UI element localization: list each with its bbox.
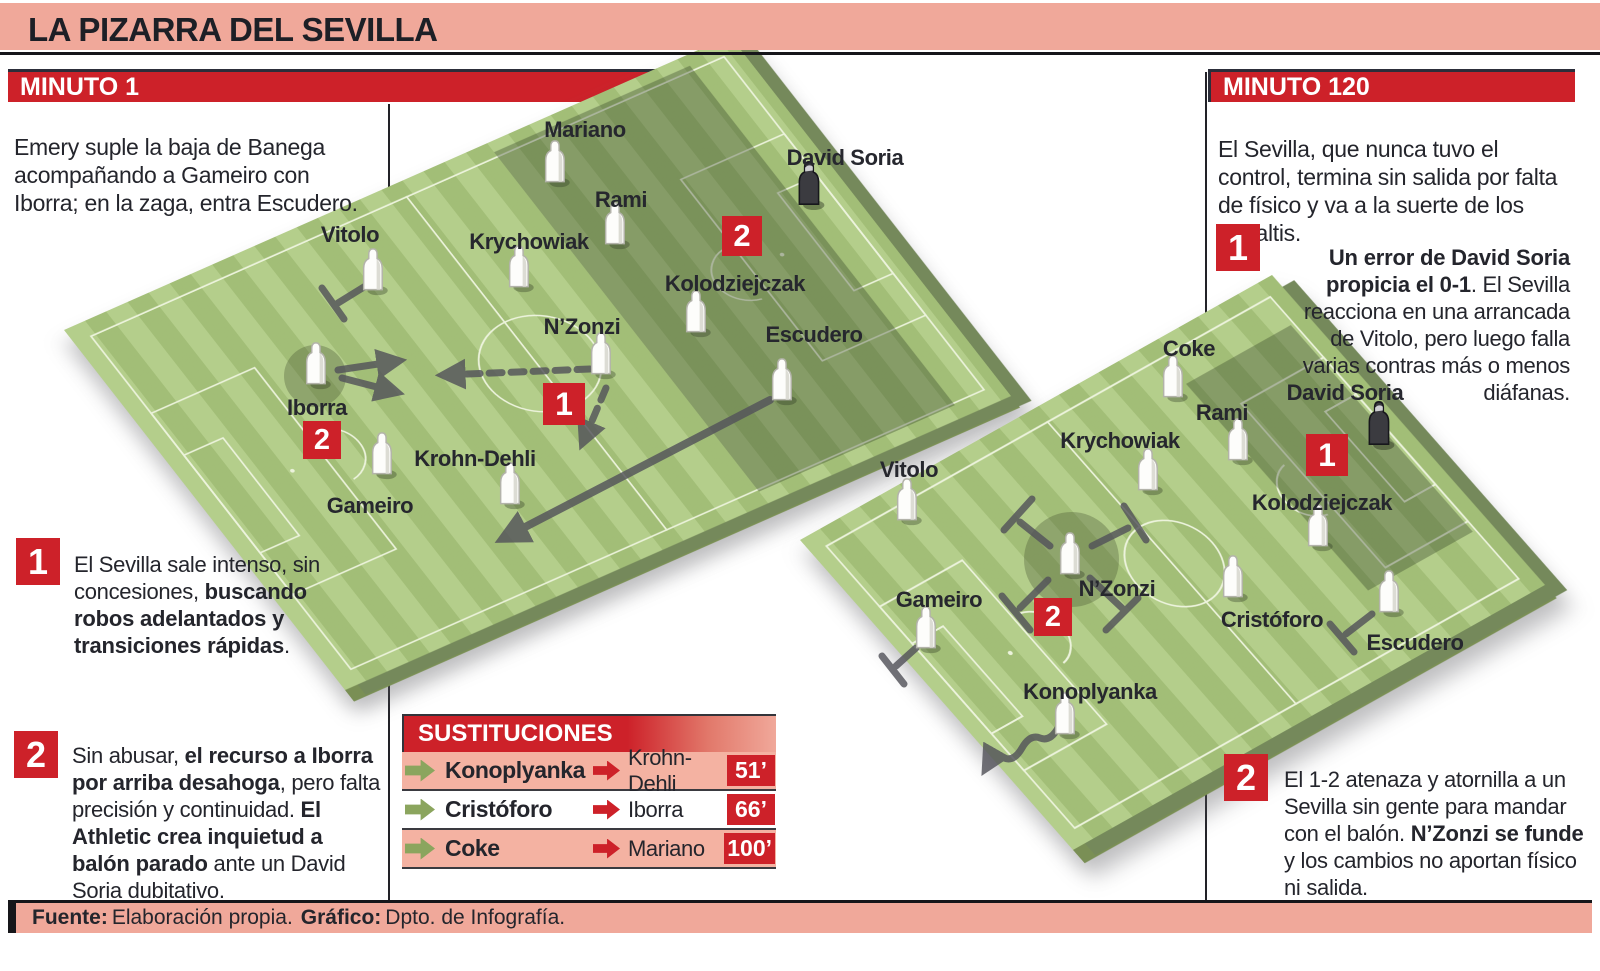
dashed-arrow-nzonzi-krohndehli — [583, 388, 606, 442]
intro-minuto-120: El Sevilla, que nunca tuvo el control, t… — [1218, 135, 1570, 247]
player-out-arrow-icon — [593, 839, 620, 859]
substitution-minute: 66’ — [727, 794, 775, 825]
player-figure — [355, 246, 389, 301]
player-label: Kolodziejczak — [1252, 490, 1392, 516]
intro-minuto-1: Emery suple la baja de Banega acompañand… — [14, 133, 372, 217]
substitution-row: Konoplyanka Krohn-Dehli 51’ — [402, 752, 776, 791]
note-2-right: El 1-2 atenaza y atornilla a un Sevilla … — [1284, 766, 1584, 901]
note-badge-2-left: 2 — [14, 731, 58, 778]
player-out: Mariano — [628, 836, 724, 862]
zone-badge: 1 — [543, 383, 585, 425]
player-figure — [364, 430, 398, 485]
player-figure — [764, 356, 798, 411]
player-label: Escudero — [1366, 630, 1463, 656]
player-label: Vitolo — [321, 222, 379, 248]
note-2-left: Sin abusar, el recurso a Iborra por arri… — [72, 742, 386, 904]
player-figure — [1215, 553, 1249, 608]
player-in-arrow-icon — [405, 799, 435, 821]
player-label: David Soria — [787, 145, 904, 171]
tbar-nzonzi-se-cross — [1106, 598, 1138, 630]
player-label: Rami — [595, 187, 647, 213]
player-in-arrow-icon — [405, 760, 435, 782]
arrow-iborra-down — [342, 378, 396, 392]
note-badge-1-right: 1 — [1216, 224, 1260, 271]
player-figure — [298, 340, 332, 395]
zone-badge: 2 — [303, 421, 341, 459]
player-figure — [537, 138, 571, 193]
title-rule — [0, 52, 1600, 55]
substitution-row: Coke Mariano 100’ — [402, 830, 776, 869]
player-label: N’Zonzi — [544, 314, 621, 340]
player-label: Cristóforo — [1221, 607, 1323, 633]
page-title: LA PIZARRA DEL SEVILLA — [0, 3, 1600, 49]
player-in: Cristóforo — [445, 796, 593, 823]
source-text: Elaboración propia. — [112, 906, 293, 929]
player-figure — [889, 476, 923, 531]
title-bar: LA PIZARRA DEL SEVILLA — [0, 3, 1600, 50]
tbar-nzonzi-ne-cross — [1124, 506, 1146, 540]
player-label: Coke — [1163, 336, 1215, 362]
player-out-arrow-icon — [593, 800, 620, 820]
player-label: Krychowiak — [1060, 428, 1180, 454]
note-badge-1-left: 1 — [16, 538, 60, 585]
arrow-iborra-up — [338, 361, 398, 370]
note-1-right: Un error de David Soria propicia el 0-1.… — [1280, 244, 1570, 406]
player-out-arrow-icon — [593, 761, 620, 781]
tbar-nzonzi-ne-stem — [1092, 528, 1128, 546]
player-label: Konoplyanka — [1023, 679, 1157, 705]
tbar-nzonzi-nw-stem — [1020, 522, 1050, 546]
source-label: Fuente: — [32, 906, 108, 929]
zone-badge: 1 — [1306, 434, 1348, 476]
note-1-left: El Sevilla sale intenso, sin concesiones… — [74, 551, 342, 659]
player-figure — [1130, 446, 1164, 501]
player-label: Kolodziejczak — [665, 271, 805, 297]
graphic-label: Gráfico: — [301, 906, 382, 929]
substitution-minute: 51’ — [727, 755, 775, 786]
player-label: Krohn-Dehli — [414, 446, 535, 472]
note-badge-2-right: 2 — [1224, 754, 1268, 801]
player-label: Mariano — [544, 117, 626, 143]
substitution-minute: 100’ — [724, 833, 775, 864]
section-header-minuto-120: MINUTO 120 — [1208, 69, 1575, 102]
goalkeeper-figure — [1360, 399, 1396, 456]
player-figure — [1371, 568, 1405, 623]
player-out: Iborra — [628, 797, 727, 823]
player-label: Escudero — [765, 322, 862, 348]
player-in: Coke — [445, 835, 593, 862]
footer-credits: Fuente:Elaboración propia.Gráfico:Dpto. … — [8, 900, 1592, 933]
zone-badge: 2 — [722, 216, 762, 256]
zone-badge: 2 — [1034, 598, 1072, 636]
player-in-arrow-icon — [405, 838, 435, 860]
dashed-arrow-nzonzi-left — [444, 369, 590, 375]
player-label: Rami — [1196, 400, 1248, 426]
player-out: Krohn-Dehli — [628, 745, 727, 797]
player-in: Konoplyanka — [445, 757, 593, 784]
player-label: Iborra — [287, 395, 347, 421]
player-label: N’Zonzi — [1079, 576, 1156, 602]
graphic-text: Dpto. de Infografía. — [385, 906, 565, 929]
substitutions-table: SUSTITUCIONES Konoplyanka Krohn-Dehli 51… — [402, 714, 776, 869]
substitution-row: Cristóforo Iborra 66’ — [402, 791, 776, 830]
player-label: Vitolo — [880, 457, 938, 483]
player-label: Krychowiak — [469, 229, 589, 255]
player-label: Gameiro — [896, 587, 982, 613]
player-label: Gameiro — [327, 493, 413, 519]
